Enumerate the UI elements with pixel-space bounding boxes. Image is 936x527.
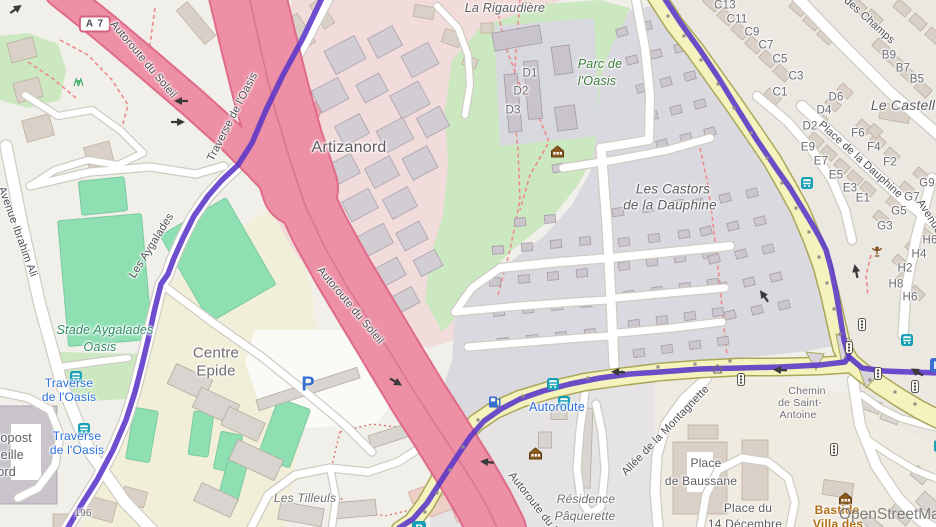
house bbox=[689, 340, 701, 349]
sports-pitch bbox=[78, 177, 127, 216]
road-marker-dot bbox=[914, 403, 917, 406]
svg-text:P: P bbox=[415, 523, 422, 527]
building bbox=[688, 425, 718, 439]
house bbox=[712, 307, 724, 316]
road-marker-dot bbox=[667, 15, 670, 18]
building bbox=[335, 499, 376, 518]
house bbox=[642, 203, 654, 212]
road-marker-dot bbox=[462, 446, 465, 449]
road-marker-dot bbox=[477, 419, 480, 422]
house bbox=[518, 275, 530, 284]
house bbox=[648, 233, 660, 242]
road-marker-dot bbox=[436, 492, 439, 495]
road-marker-dot bbox=[766, 157, 769, 160]
road-marker-dot bbox=[733, 107, 736, 110]
sports-pitch bbox=[58, 214, 153, 347]
parking-letter: P bbox=[301, 374, 314, 397]
map-render-layer bbox=[0, 0, 936, 527]
building bbox=[554, 105, 577, 132]
oneway-arrow-icon bbox=[171, 118, 185, 126]
road-marker-dot bbox=[694, 363, 697, 366]
house bbox=[514, 218, 526, 227]
house bbox=[579, 237, 591, 246]
road-marker-dot bbox=[818, 256, 821, 259]
road-marker-dot bbox=[795, 207, 798, 210]
building bbox=[22, 114, 55, 142]
house bbox=[544, 215, 556, 224]
building bbox=[481, 23, 493, 33]
map-canvas[interactable]: PPPA 7 Autoroute du SoleilAutoroute du S… bbox=[0, 0, 936, 527]
oneway-arrow-icon bbox=[8, 2, 24, 17]
house bbox=[547, 272, 559, 281]
building bbox=[551, 409, 567, 420]
road-marker-dot bbox=[424, 511, 427, 514]
road-marker-dot bbox=[808, 231, 811, 234]
road-marker-dot bbox=[839, 333, 842, 336]
road-marker-dot bbox=[587, 377, 590, 380]
road-marker-dot bbox=[833, 308, 836, 311]
house bbox=[661, 344, 673, 353]
road-marker-dot bbox=[729, 360, 732, 363]
house bbox=[618, 261, 630, 270]
road-marker-dot bbox=[683, 35, 686, 38]
house bbox=[717, 336, 729, 345]
attribution: OpenStreetMap bbox=[839, 506, 936, 524]
road-marker-dot bbox=[781, 182, 784, 185]
house bbox=[672, 199, 684, 208]
building bbox=[11, 424, 41, 480]
house bbox=[521, 243, 533, 252]
house bbox=[576, 269, 588, 278]
house bbox=[492, 246, 504, 255]
road-marker-dot bbox=[750, 132, 753, 135]
house bbox=[684, 311, 696, 320]
road-marker-dot bbox=[826, 282, 829, 285]
house bbox=[633, 348, 645, 357]
building bbox=[176, 2, 215, 45]
house bbox=[618, 237, 630, 246]
road-marker-dot bbox=[717, 83, 720, 86]
road-marker-dot bbox=[657, 366, 660, 369]
road-marker-dot bbox=[869, 379, 872, 382]
house bbox=[678, 229, 690, 238]
house bbox=[550, 240, 562, 249]
building bbox=[742, 440, 768, 500]
road-marker-dot bbox=[522, 395, 525, 398]
house bbox=[612, 207, 624, 216]
road-marker-dot bbox=[449, 469, 452, 472]
motorway-shield: A 7 bbox=[79, 16, 111, 33]
building bbox=[551, 45, 573, 75]
building bbox=[539, 432, 552, 448]
house bbox=[656, 315, 668, 324]
road-marker-dot bbox=[894, 391, 897, 394]
road-marker-dot bbox=[700, 59, 703, 62]
